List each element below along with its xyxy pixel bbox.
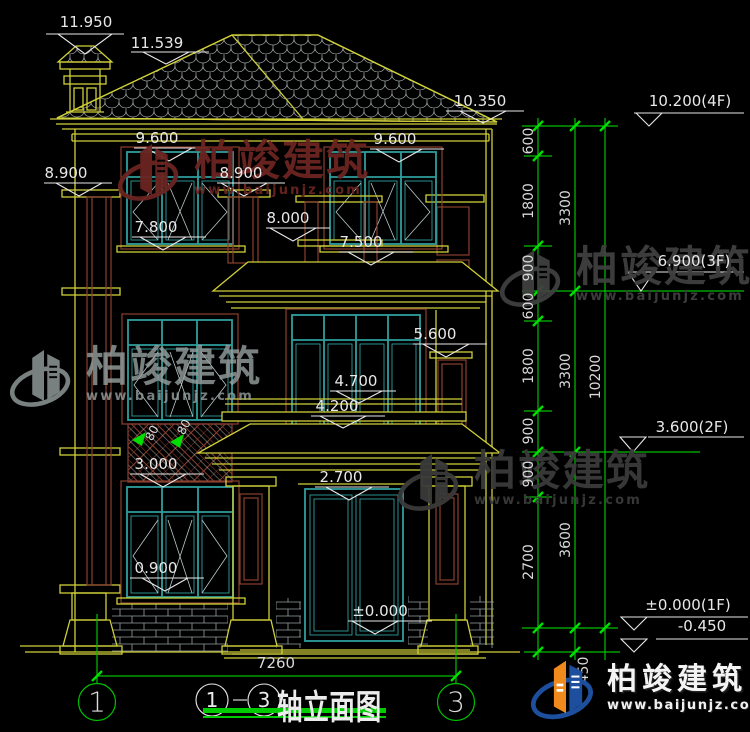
level-marker: 6.900(3F) (658, 252, 731, 270)
chain-dimension: 900 (521, 255, 537, 282)
elevation-marker: 2.700 (320, 468, 363, 486)
chain-dimension: 900 (521, 461, 537, 488)
annotation-layer: 11.95011.53910.3509.6009.6008.9008.9007.… (0, 0, 750, 732)
elevation-marker: 7.500 (340, 233, 383, 251)
watermark-brand: 柏竣建筑 (474, 450, 650, 492)
company-logo-site: www.baijunjz.com (607, 698, 750, 713)
chain-dimension: 10200 (588, 355, 604, 400)
chain-dimension: 900 (521, 418, 537, 445)
chain-dimension: 3300 (558, 353, 574, 389)
title-axis-end-bubble: 3 (248, 684, 280, 716)
elevation-marker: ±0.000 (352, 602, 408, 620)
elevation-marker: 11.539 (131, 34, 184, 52)
elevation-marker: 5.600 (414, 325, 457, 343)
watermark-site: www.baijunjz.com (194, 183, 370, 198)
elevation-marker: 7.800 (135, 218, 178, 236)
title-axis-start: 1 (206, 688, 219, 712)
elevation-marker: 4.700 (335, 372, 378, 390)
title-axis-start-bubble: 1 (196, 684, 228, 716)
elevation-marker: 0.900 (135, 559, 178, 577)
watermark-brand: 柏竣建筑 (86, 346, 262, 388)
elevation-marker: 8.900 (220, 164, 263, 182)
level-marker: 10.200(4F) (649, 92, 731, 110)
elevation-marker: 9.600 (374, 130, 417, 148)
company-logo-icon (531, 653, 601, 725)
level-marker: -0.450 (678, 617, 726, 635)
title-axis-end: 3 (258, 688, 271, 712)
chain-dimension: 3300 (558, 190, 574, 226)
watermark-site: www.baijunjz.com (576, 289, 750, 304)
detail-dimension: 80 (174, 417, 194, 437)
watermark-logo-icon (398, 450, 466, 513)
overall-width-dimension: 7260 (257, 654, 295, 672)
elevation-marker: 10.350 (454, 92, 507, 110)
elevation-marker: 9.600 (136, 129, 179, 147)
elevation-marker: 8.000 (267, 209, 310, 227)
chain-dimension: 1800 (521, 183, 537, 219)
watermark-logo-icon (10, 346, 78, 409)
watermark: 柏竣建筑www.baijunjz.com (10, 346, 262, 409)
level-marker: ±0.000(1F) (645, 596, 730, 614)
title-text: 轴立面图 (277, 680, 382, 729)
detail-dimension: 80 (142, 423, 162, 443)
level-marker: 3.600(2F) (656, 418, 729, 436)
axis-bubble-number: 1 (88, 686, 106, 719)
watermark-site: www.baijunjz.com (86, 389, 262, 404)
elevation-marker: 4.200 (316, 397, 359, 415)
cad-elevation-screenshot: 11.95011.53910.3509.6009.6008.9008.9007.… (0, 0, 750, 732)
elevation-marker: 11.950 (60, 13, 113, 31)
company-logo-brand: 柏竣建筑 (607, 665, 750, 695)
elevation-marker: 8.900 (45, 164, 88, 182)
chain-dimension: 3600 (558, 522, 574, 558)
elevation-marker: 3.000 (135, 455, 178, 473)
watermark-site: www.baijunjz.com (474, 493, 650, 508)
chain-dimension: 1800 (521, 348, 537, 384)
axis-bubble-number: 3 (447, 686, 465, 719)
chain-dimension: 600 (521, 293, 537, 320)
watermark-logo-icon (118, 140, 186, 203)
company-logo: 柏竣建筑 www.baijunjz.com (531, 653, 750, 725)
chain-dimension: 600 (521, 128, 537, 155)
chain-dimension: 2700 (521, 544, 537, 580)
